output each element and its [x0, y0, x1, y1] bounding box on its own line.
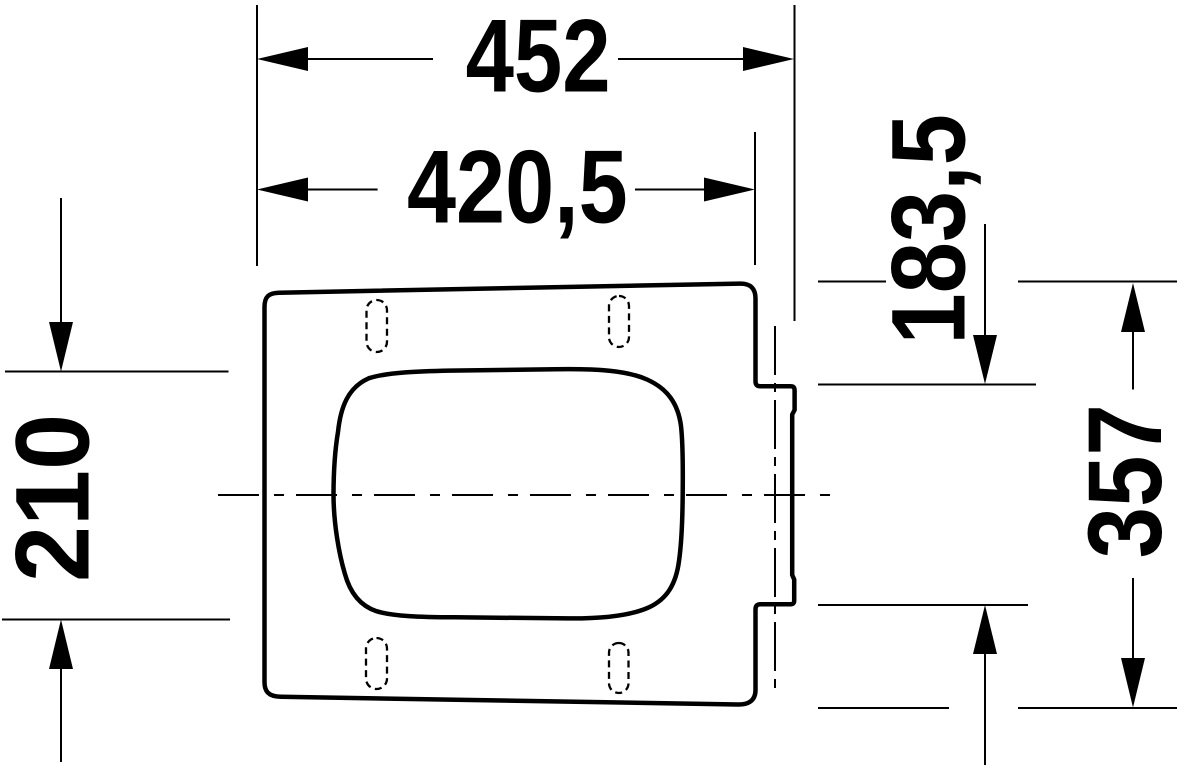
svg-text:357: 357 [1067, 404, 1184, 558]
svg-text:420,5: 420,5 [407, 128, 628, 244]
svg-text:452: 452 [466, 0, 611, 113]
svg-text:183,5: 183,5 [870, 114, 987, 344]
svg-text:210: 210 [0, 414, 111, 582]
